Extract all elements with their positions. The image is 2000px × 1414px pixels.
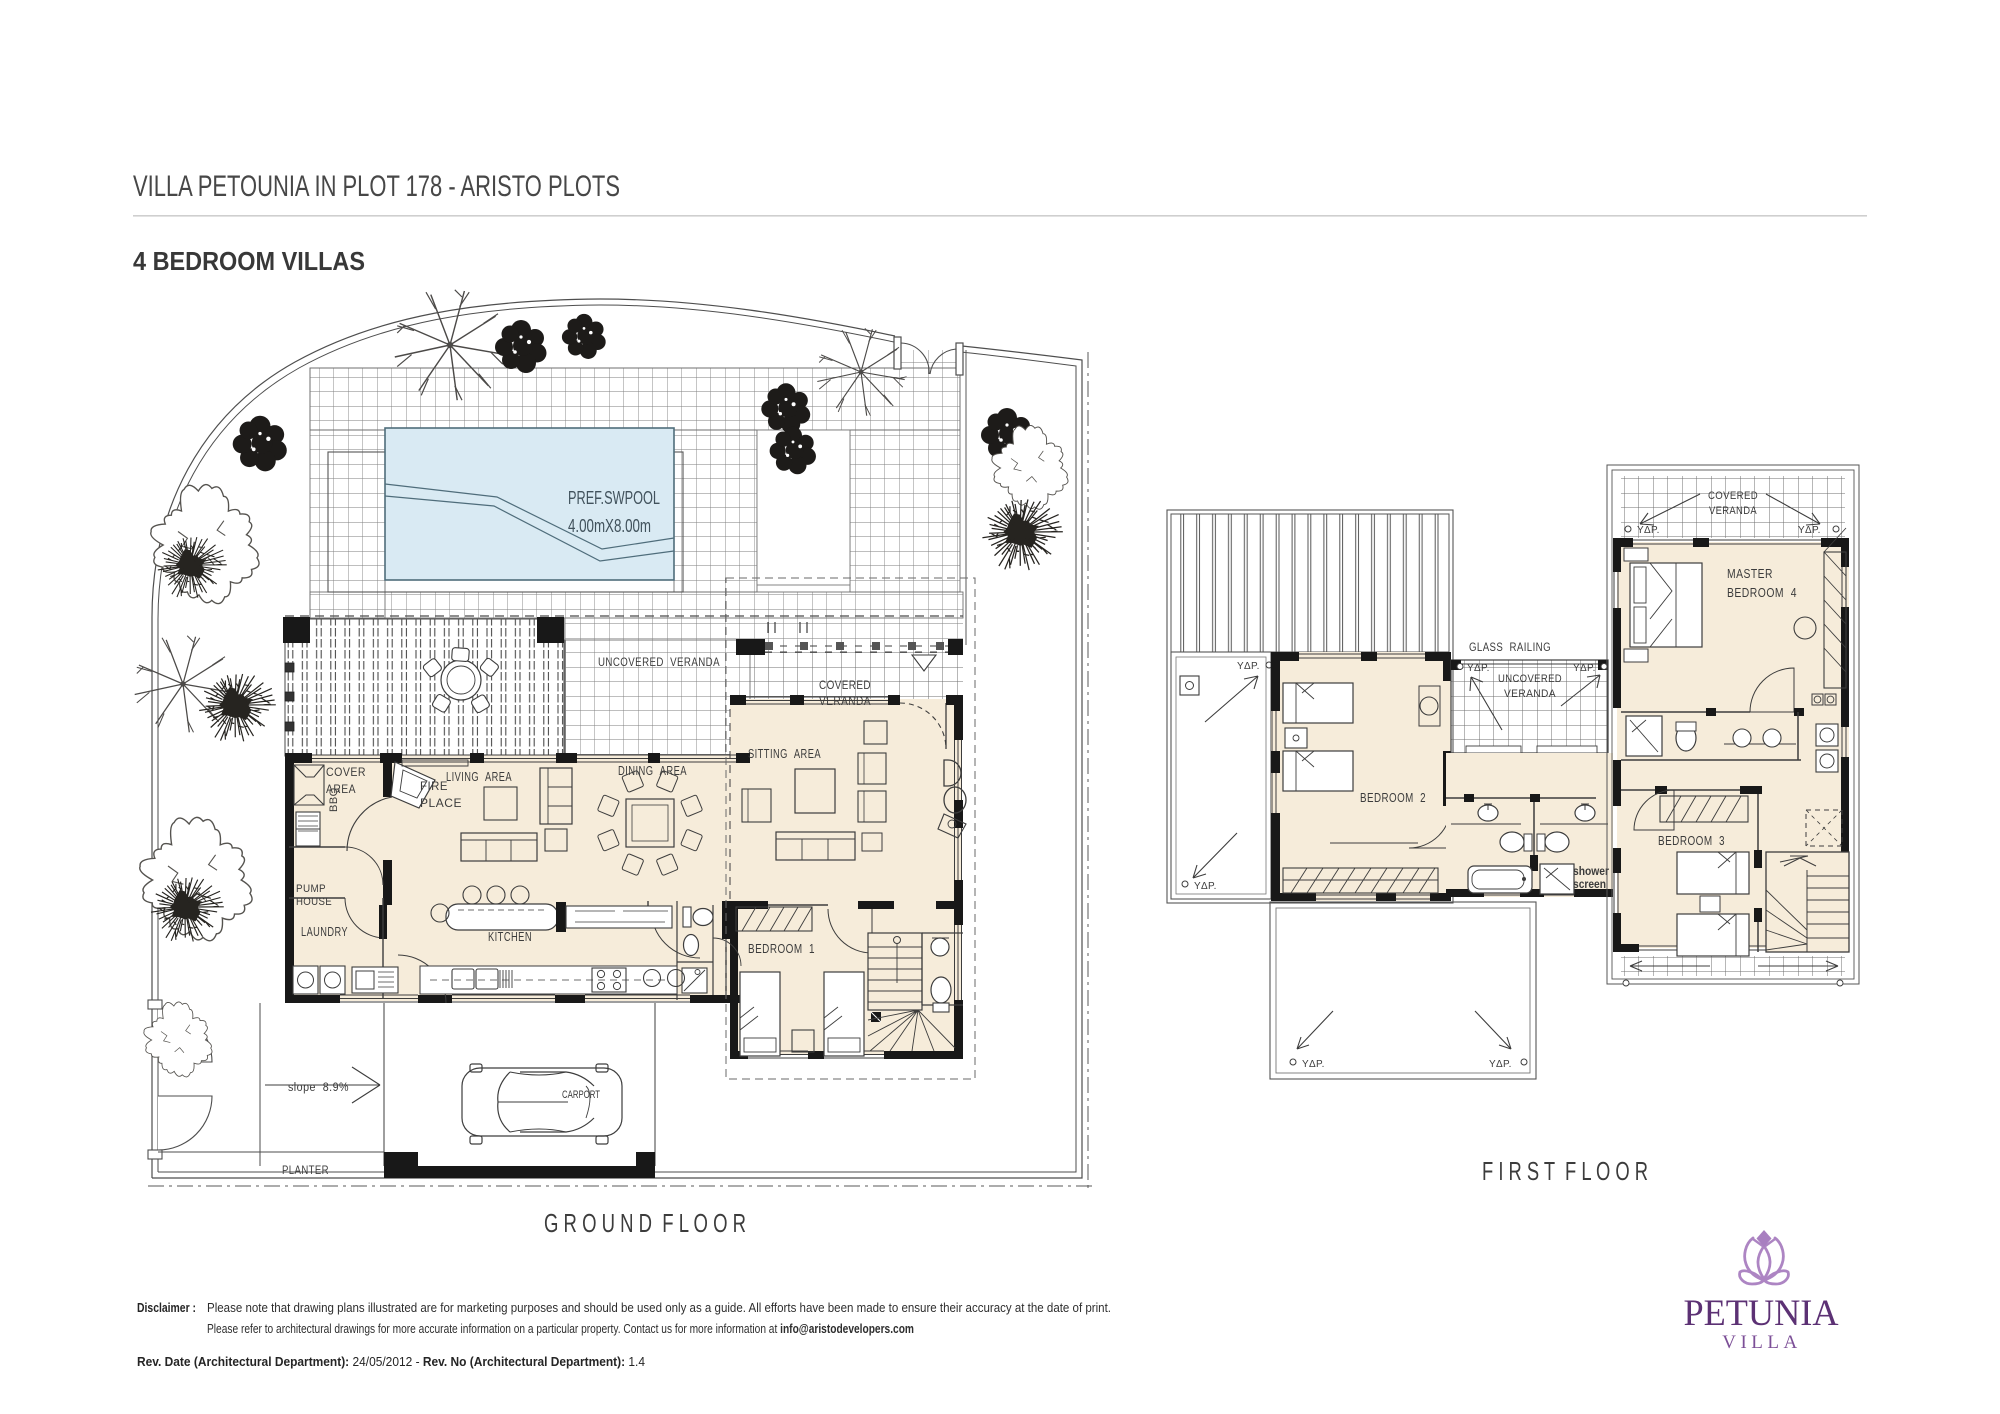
svg-text:COVERED: COVERED	[819, 680, 871, 692]
svg-text:BEDROOM 1: BEDROOM 1	[748, 941, 815, 956]
svg-text:GLASS RAILING: GLASS RAILING	[1469, 642, 1551, 654]
svg-text:VERANDA: VERANDA	[819, 696, 871, 708]
svg-text:PLACE: PLACE	[420, 798, 462, 810]
svg-text:FIRE: FIRE	[420, 781, 448, 793]
svg-text:AREA: AREA	[326, 784, 356, 796]
svg-text:4.00mX8.00m: 4.00mX8.00m	[568, 516, 651, 536]
svg-text:Rev. Date (Architectural Depar: Rev. Date (Architectural Department): 24…	[137, 1354, 645, 1369]
svg-text:YΔP.: YΔP.	[1302, 1059, 1325, 1070]
svg-text:CARPORT: CARPORT	[562, 1089, 600, 1101]
svg-text:PLANTER: PLANTER	[282, 1165, 329, 1177]
svg-text:LIVING AREA: LIVING AREA	[446, 769, 512, 784]
svg-text:F I R S T F L O O R: F I R S T F L O O R	[1482, 1156, 1648, 1186]
svg-text:COVER: COVER	[326, 767, 366, 779]
svg-text:HOUSE: HOUSE	[296, 896, 332, 908]
svg-text:LAUNDRY: LAUNDRY	[301, 924, 348, 939]
svg-text:PETUNIA: PETUNIA	[1684, 1293, 1839, 1334]
svg-text:PREF.SWPOOL: PREF.SWPOOL	[568, 488, 660, 508]
svg-text:VERANDA: VERANDA	[1709, 505, 1757, 517]
svg-text:VILLA: VILLA	[1722, 1332, 1801, 1353]
svg-text:YΔP.: YΔP.	[1194, 881, 1217, 892]
svg-text:PUMP: PUMP	[296, 883, 326, 895]
svg-text:Disclaimer :: Disclaimer :	[137, 1300, 196, 1315]
svg-text:shower: shower	[1573, 864, 1609, 878]
svg-text:YΔP.: YΔP.	[1237, 661, 1260, 672]
svg-text:screen: screen	[1573, 877, 1606, 891]
svg-text:UNCOVERED VERANDA: UNCOVERED VERANDA	[598, 657, 720, 669]
svg-text:SITTING AREA: SITTING AREA	[748, 746, 821, 761]
svg-text:MASTER: MASTER	[1727, 566, 1773, 581]
svg-text:slope 8.9%: slope 8.9%	[288, 1082, 349, 1094]
svg-text:YΔP.: YΔP.	[1798, 525, 1821, 536]
svg-text:KITCHEN: KITCHEN	[488, 929, 532, 944]
svg-text:UNCOVERED: UNCOVERED	[1498, 673, 1562, 685]
svg-text:VILLA PETOUNIA IN PLOT 178 - A: VILLA PETOUNIA IN PLOT 178 - ARISTO PLOT…	[133, 170, 620, 203]
svg-text:YΔP.: YΔP.	[1637, 525, 1660, 536]
svg-text:BEDROOM 3: BEDROOM 3	[1658, 833, 1725, 848]
svg-text:YΔP.: YΔP.	[1489, 1059, 1512, 1070]
svg-text:YΔP.: YΔP.	[1467, 663, 1490, 674]
svg-text:BEDROOM 2: BEDROOM 2	[1360, 790, 1426, 805]
svg-text:G R O U N D F L O O R: G R O U N D F L O O R	[544, 1208, 746, 1238]
svg-text:YΔP.: YΔP.	[1573, 663, 1596, 674]
svg-text:COVERED: COVERED	[1708, 490, 1758, 502]
svg-text:Please refer to architectural: Please refer to architectural drawings f…	[207, 1321, 914, 1336]
svg-text:VERANDA: VERANDA	[1504, 688, 1556, 700]
svg-text:4 BEDROOM VILLAS: 4 BEDROOM VILLAS	[133, 246, 365, 276]
svg-text:BEDROOM 4: BEDROOM 4	[1727, 585, 1797, 600]
svg-text:Please note that drawing plans: Please note that drawing plans illustrat…	[207, 1300, 1111, 1315]
